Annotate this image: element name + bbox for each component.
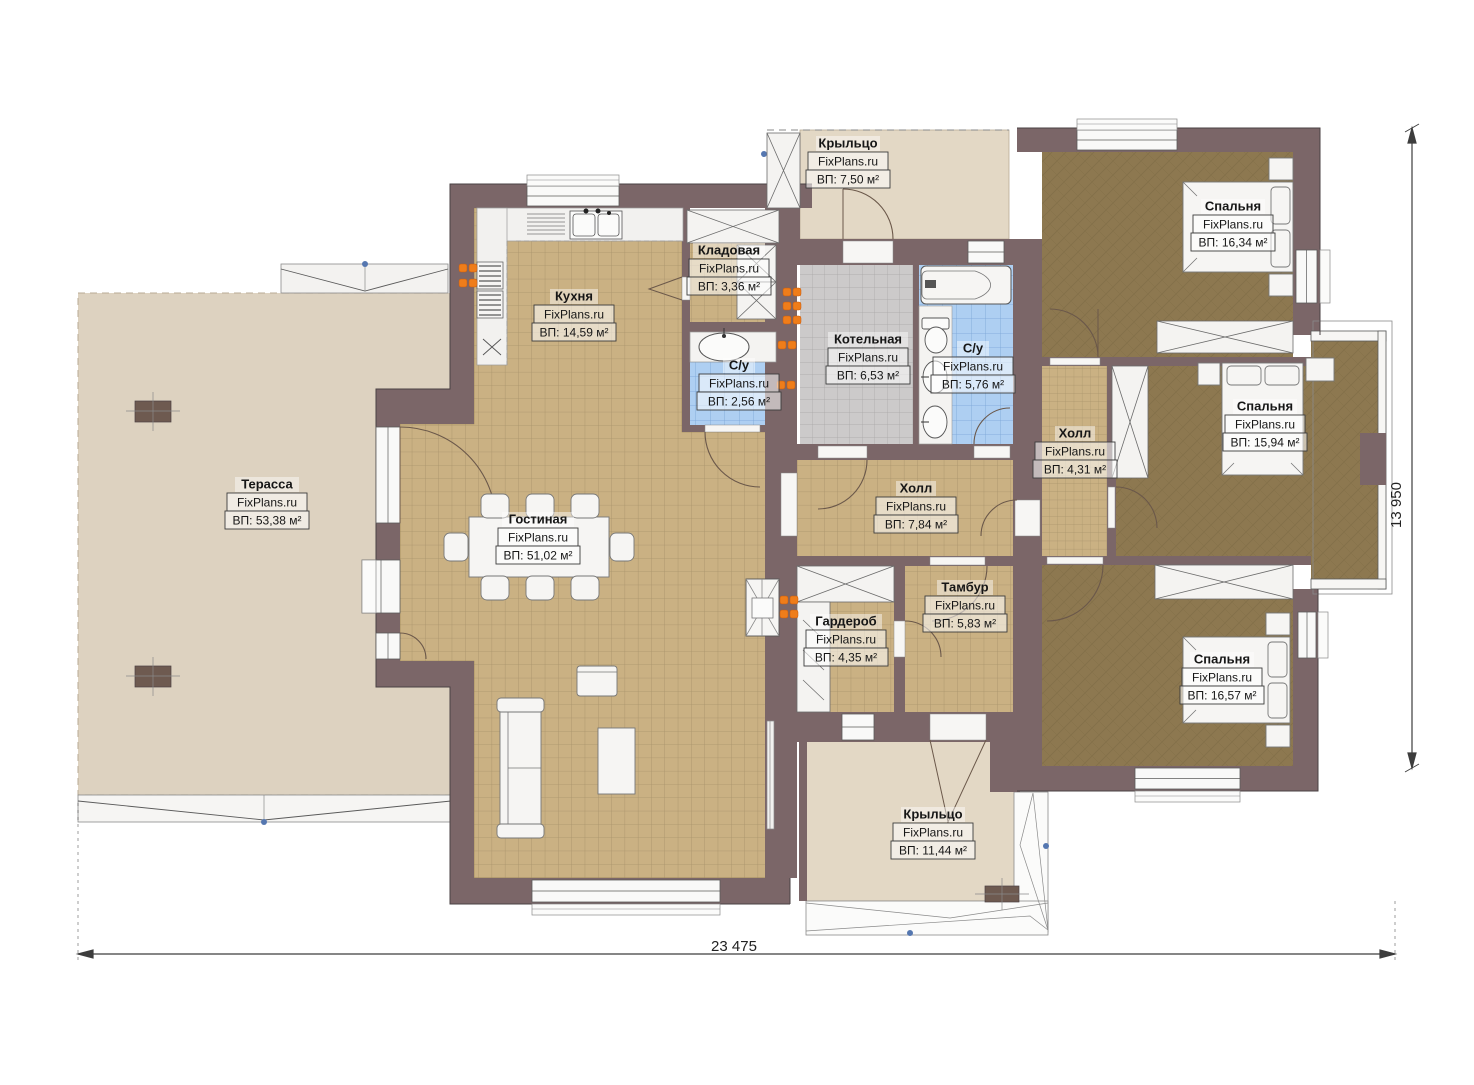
svg-text:Терасса: Терасса	[241, 477, 293, 492]
svg-text:С/у: С/у	[729, 358, 750, 373]
svg-text:Гардероб: Гардероб	[815, 614, 876, 629]
svg-text:Кладовая: Кладовая	[698, 243, 760, 258]
svg-text:ВП: 11,44 м²: ВП: 11,44 м²	[899, 844, 967, 858]
svg-text:ВП: 51,02 м²: ВП: 51,02 м²	[504, 549, 573, 563]
svg-text:ВП: 16,57 м²: ВП: 16,57 м²	[1188, 689, 1257, 703]
svg-text:Кухня: Кухня	[555, 289, 593, 304]
svg-text:Спальня: Спальня	[1194, 652, 1250, 667]
svg-text:Тамбур: Тамбур	[941, 580, 988, 595]
svg-text:FixPlans.ru: FixPlans.ru	[237, 496, 297, 510]
svg-text:13 950: 13 950	[1388, 482, 1405, 528]
svg-text:FixPlans.ru: FixPlans.ru	[838, 351, 898, 365]
svg-text:FixPlans.ru: FixPlans.ru	[943, 360, 1003, 374]
svg-text:ВП: 7,50 м²: ВП: 7,50 м²	[817, 173, 879, 187]
svg-text:ВП: 5,83 м²: ВП: 5,83 м²	[934, 617, 996, 631]
svg-text:ВП: 5,76 м²: ВП: 5,76 м²	[942, 378, 1004, 392]
svg-text:Котельная: Котельная	[834, 332, 902, 347]
svg-text:FixPlans.ru: FixPlans.ru	[508, 531, 568, 545]
svg-text:ВП: 3,36 м²: ВП: 3,36 м²	[698, 280, 760, 294]
svg-text:ВП: 16,34 м²: ВП: 16,34 м²	[1199, 236, 1268, 250]
svg-text:FixPlans.ru: FixPlans.ru	[903, 826, 963, 840]
svg-text:Холл: Холл	[900, 481, 933, 496]
svg-text:Крыльцо: Крыльцо	[818, 136, 877, 151]
svg-text:Спальня: Спальня	[1237, 399, 1293, 414]
svg-text:FixPlans.ru: FixPlans.ru	[1235, 418, 1295, 432]
svg-text:FixPlans.ru: FixPlans.ru	[544, 308, 604, 322]
svg-text:FixPlans.ru: FixPlans.ru	[1045, 445, 1105, 459]
svg-text:ВП: 15,94 м²: ВП: 15,94 м²	[1231, 436, 1300, 450]
svg-text:FixPlans.ru: FixPlans.ru	[816, 633, 876, 647]
svg-text:ВП: 7,84 м²: ВП: 7,84 м²	[885, 518, 947, 532]
svg-text:ВП: 4,31 м²: ВП: 4,31 м²	[1044, 463, 1106, 477]
svg-text:Спальня: Спальня	[1205, 199, 1261, 214]
svg-text:С/у: С/у	[963, 341, 984, 356]
svg-text:FixPlans.ru: FixPlans.ru	[886, 500, 946, 514]
svg-text:FixPlans.ru: FixPlans.ru	[699, 262, 759, 276]
svg-text:ВП: 14,59 м²: ВП: 14,59 м²	[540, 326, 609, 340]
svg-text:23 475: 23 475	[711, 938, 757, 955]
svg-text:ВП: 53,38 м²: ВП: 53,38 м²	[233, 514, 302, 528]
svg-text:Крыльцо: Крыльцо	[903, 807, 962, 822]
svg-text:FixPlans.ru: FixPlans.ru	[709, 377, 769, 391]
svg-text:FixPlans.ru: FixPlans.ru	[1192, 671, 1252, 685]
svg-text:FixPlans.ru: FixPlans.ru	[1203, 218, 1263, 232]
svg-text:Холл: Холл	[1059, 426, 1092, 441]
svg-text:ВП: 6,53 м²: ВП: 6,53 м²	[837, 369, 899, 383]
svg-text:ВП: 2,56 м²: ВП: 2,56 м²	[708, 395, 770, 409]
svg-text:FixPlans.ru: FixPlans.ru	[935, 599, 995, 613]
svg-text:Гостиная: Гостиная	[509, 512, 568, 527]
svg-text:ВП: 4,35 м²: ВП: 4,35 м²	[815, 651, 877, 665]
svg-text:FixPlans.ru: FixPlans.ru	[818, 155, 878, 169]
